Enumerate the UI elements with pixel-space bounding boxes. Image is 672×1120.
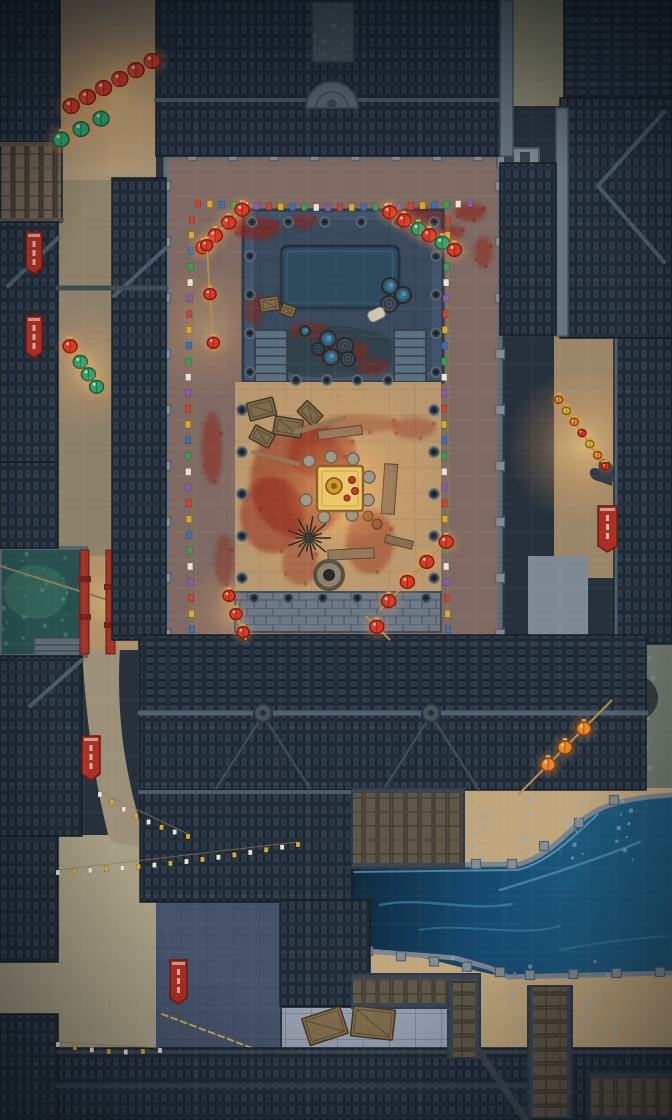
- battle-map: [0, 0, 672, 1120]
- vignette: [0, 0, 672, 1120]
- battlemap-canvas[interactable]: [0, 0, 672, 1120]
